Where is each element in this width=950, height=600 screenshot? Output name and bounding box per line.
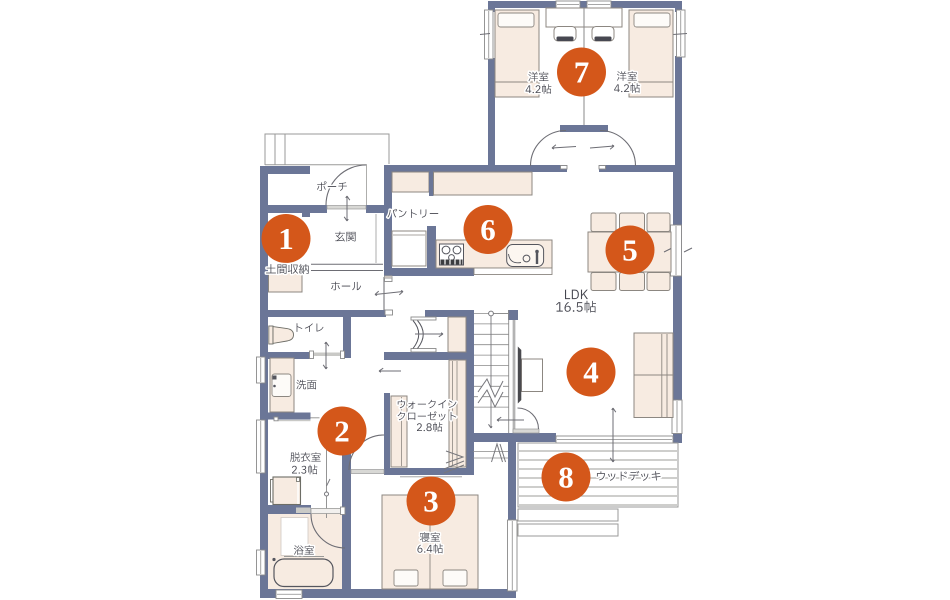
svg-text:8: 8 — [558, 460, 574, 495]
svg-text:2: 2 — [334, 414, 350, 449]
svg-text:5: 5 — [622, 233, 638, 268]
svg-text:6: 6 — [480, 212, 496, 247]
svg-text:7: 7 — [574, 55, 590, 90]
svg-text:3: 3 — [423, 484, 439, 519]
svg-text:1: 1 — [278, 221, 294, 256]
svg-text:4: 4 — [583, 355, 599, 390]
